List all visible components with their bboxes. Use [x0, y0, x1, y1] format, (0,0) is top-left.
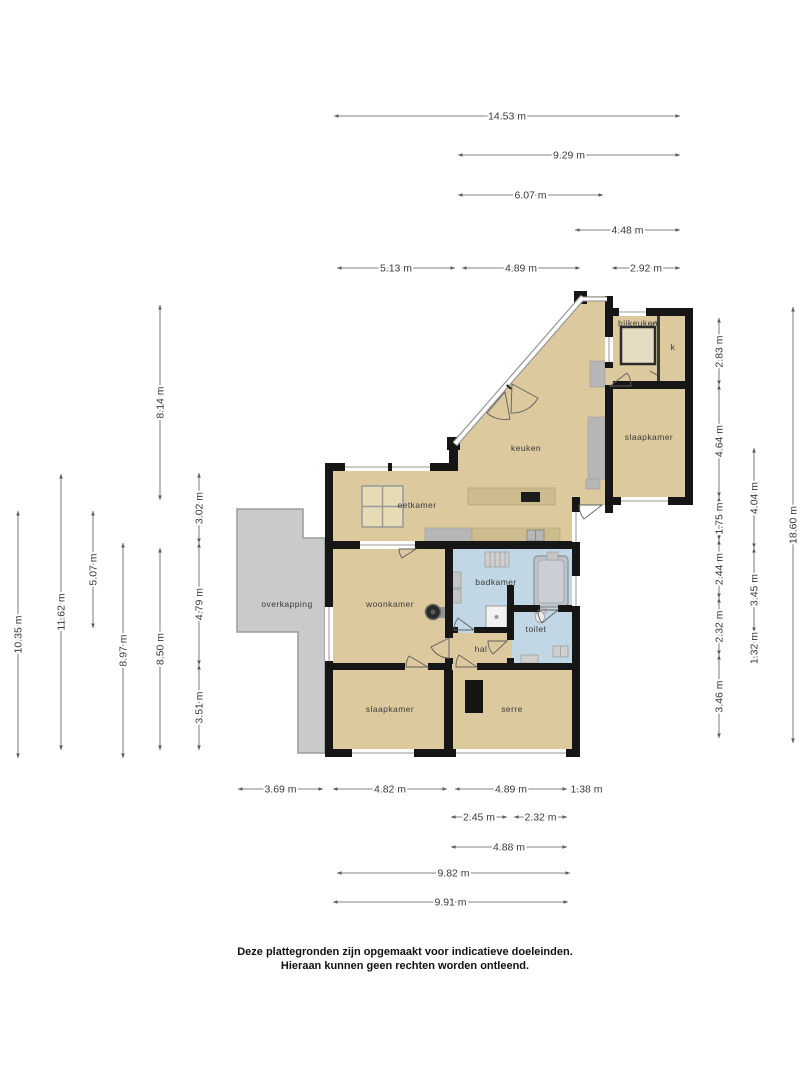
- dimension-label: 3.69 m: [264, 784, 296, 796]
- dimension-label: 9.82 m: [437, 868, 469, 880]
- dimension-label: 14.53 m: [488, 111, 526, 123]
- dimension: 14.53 m: [334, 111, 680, 123]
- dimension-label: 4.82 m: [374, 784, 406, 796]
- room-label-hal: hal: [475, 644, 488, 654]
- bijkeuken-unit: [621, 327, 655, 364]
- room-label-toilet: toilet: [526, 624, 547, 634]
- dimension: 6.07 m: [458, 190, 603, 202]
- dimension: 2.32 m: [514, 812, 567, 824]
- disclaimer: Deze plattegronden zijn opgemaakt voor i…: [0, 945, 810, 973]
- shower: [486, 606, 507, 628]
- dimension-label: 9.29 m: [553, 150, 585, 162]
- chimney: [465, 680, 483, 713]
- room-label-bijkeuken: bijkeuken: [618, 318, 658, 328]
- dimension-label: 18.60 m: [788, 506, 800, 544]
- dimension-label: 4.64 m: [714, 425, 726, 457]
- door-back: [579, 505, 602, 519]
- dimension: 8.50 m: [155, 548, 167, 750]
- dimension: 3.51 m: [194, 665, 206, 750]
- dimension-label: 11.62 m: [56, 593, 68, 630]
- dimension-label: 3.46 m: [714, 680, 726, 712]
- dimension-label: 5.07 m: [88, 553, 100, 585]
- dimension-label: 6.07 m: [514, 190, 546, 202]
- room-label-badkamer: badkamer: [475, 577, 516, 587]
- dimension: 5.13 m: [337, 263, 455, 275]
- dimension: 3.02 m: [194, 473, 206, 543]
- dimension: 11.62 m: [56, 474, 68, 750]
- dimension-label: 1.75 m: [714, 502, 726, 534]
- room-label-overkapping: overkapping: [261, 599, 312, 609]
- dimension: 2.83 m: [714, 318, 726, 385]
- dimension: 1.32 m: [749, 632, 761, 664]
- dimension: 9.29 m: [458, 150, 680, 162]
- disclaimer-line-1: Deze plattegronden zijn opgemaakt voor i…: [0, 945, 810, 959]
- dimension-label: 8.97 m: [118, 634, 130, 666]
- dimension-label: 10.35 m: [13, 615, 25, 653]
- dimension-label: 5.13 m: [380, 263, 412, 275]
- dimension-label: 8.50 m: [155, 633, 167, 665]
- bathroom-cabinet: [452, 572, 461, 603]
- dimension-label: 2.45 m: [463, 812, 495, 824]
- room-label-kast: k: [671, 342, 676, 352]
- dimension: 3.46 m: [714, 655, 726, 738]
- dimension-label: 1.32 m: [749, 632, 761, 664]
- bathroom-shelf: [547, 552, 558, 560]
- dimension: 4.89 m: [455, 784, 567, 796]
- dimension: 9.82 m: [337, 868, 570, 880]
- dimension: 1.75 m: [714, 497, 726, 540]
- disclaimer-line-2: Hieraan kunnen geen rechten worden ontle…: [0, 959, 810, 973]
- dimension: 10.35 m: [13, 511, 25, 758]
- room-label-woonkamer: woonkamer: [365, 599, 414, 609]
- dimension-label: 3.02 m: [194, 492, 206, 524]
- dimension: 4.82 m: [333, 784, 447, 796]
- dimension: 4.64 m: [714, 385, 726, 497]
- dimension: 2.32 m: [714, 598, 726, 655]
- dimension-label: 2.92 m: [630, 263, 662, 275]
- dimension: 3.69 m: [238, 784, 323, 796]
- washbasin: [553, 646, 568, 657]
- floor-plan-page: bijkeukenkslaapkamerkeukeneetkameroverka…: [0, 0, 810, 1080]
- floor-plan-svg: bijkeukenkslaapkamerkeukeneetkameroverka…: [0, 0, 810, 1080]
- dimension: 5.07 m: [88, 511, 100, 628]
- dimension-label: 2.32 m: [524, 812, 556, 824]
- room-label-slaapkamer-onder: slaapkamer: [366, 704, 414, 714]
- dimension-label: 3.45 m: [749, 574, 761, 606]
- dimension-label: 4.89 m: [495, 784, 527, 796]
- dimension-label: 4.79 m: [194, 588, 206, 620]
- cooktop: [521, 492, 540, 502]
- dimension: 4.04 m: [749, 448, 761, 548]
- dimension: 8.14 m: [155, 305, 167, 500]
- room-label-keuken: keuken: [511, 443, 541, 453]
- dimension: 4.89 m: [462, 263, 580, 275]
- dimension: 1.38 m: [570, 784, 603, 796]
- dimension-label: 4.88 m: [493, 842, 525, 854]
- dimension-label: 4.04 m: [749, 482, 761, 514]
- dimension-label: 8.14 m: [155, 386, 167, 418]
- dimension-label: 4.48 m: [611, 225, 643, 237]
- dimension: 4.79 m: [194, 543, 206, 665]
- dimension-label: 2.32 m: [714, 610, 726, 642]
- dimension-label: 2.83 m: [714, 335, 726, 367]
- dimension: 4.88 m: [451, 842, 567, 854]
- room-label-serre: serre: [501, 704, 523, 714]
- dimension-label: 1.38 m: [570, 784, 602, 796]
- dimension: 4.48 m: [575, 225, 680, 237]
- room-label-eetkamer: eetkamer: [397, 500, 436, 510]
- dimension-label: 4.89 m: [505, 263, 537, 275]
- dimension-label: 2.44 m: [714, 553, 726, 585]
- kitchen-island: [468, 488, 555, 505]
- toilet-radiator: [521, 655, 538, 663]
- bathtub: [534, 556, 568, 607]
- dimension: 2.44 m: [714, 540, 726, 598]
- dimension: 18.60 m: [788, 307, 800, 743]
- dimension-label: 3.51 m: [194, 691, 206, 723]
- dimension: 3.45 m: [749, 548, 761, 632]
- dimension: 2.45 m: [451, 812, 507, 824]
- dimension: 8.97 m: [118, 543, 130, 758]
- dimension: 9.91 m: [333, 897, 568, 909]
- dimension-label: 9.91 m: [434, 897, 466, 909]
- overkapping-floor: [237, 509, 325, 753]
- radiator: [485, 552, 509, 567]
- dimension: 2.92 m: [612, 263, 680, 275]
- room-label-slaapkamer-rechts: slaapkamer: [625, 432, 673, 442]
